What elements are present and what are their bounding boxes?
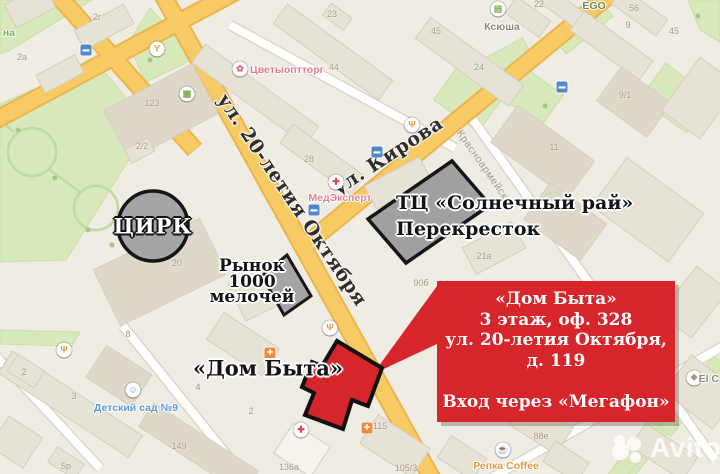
callout-address: «Дом Быта»3 этаж, оф. 328ул. 20-летия Ок…: [437, 281, 675, 371]
dom-byta-label: «Дом Быта»: [193, 356, 343, 381]
callout-entrance-note: Вход через «Мегафон»: [437, 392, 675, 412]
market-label: Рынок1000мелочей: [210, 259, 295, 306]
callout-address-line: 3 этаж, оф. 328: [437, 310, 675, 331]
callout-address-line: д. 119: [437, 351, 675, 372]
avito-watermark-text: Avito: [650, 432, 720, 464]
callout-address-line: «Дом Быта»: [437, 289, 675, 310]
avito-logo-icon: [630, 452, 641, 463]
circus-label: ЦИРК: [113, 214, 192, 239]
mall-label-line: Перекресток: [396, 216, 633, 242]
map-ad-image: ул. 20-летия Октябряул. КироваКрасноарме…: [0, 0, 720, 474]
mall-label-line: ТЦ «Солнечный рай»: [396, 190, 633, 216]
avito-watermark: Avito: [610, 430, 720, 470]
callout-address-line: ул. 20-летия Октября,: [437, 330, 675, 351]
avito-logo-icon: [627, 437, 641, 451]
callout-box: «Дом Быта»3 этаж, оф. 328ул. 20-летия Ок…: [437, 281, 675, 422]
mall-label: ТЦ «Солнечный рай»Перекресток: [396, 190, 633, 242]
market-label-line: мелочей: [210, 290, 295, 306]
